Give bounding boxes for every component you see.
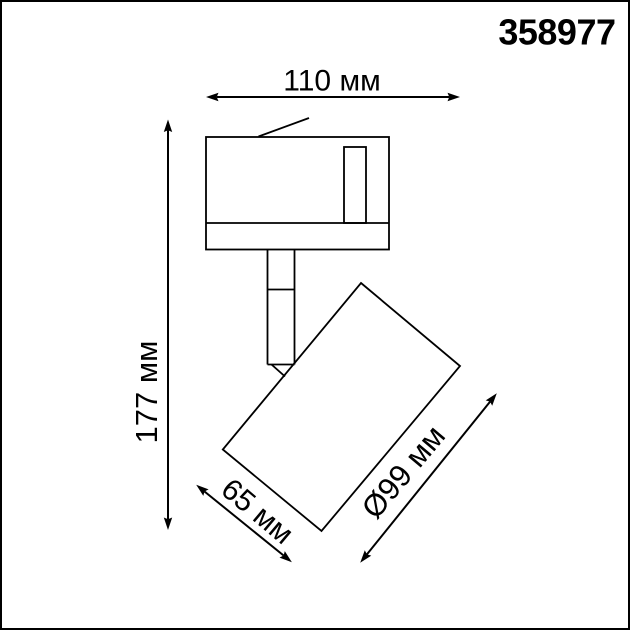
svg-text:358977: 358977 — [498, 12, 615, 53]
svg-text:177 мм: 177 мм — [129, 341, 164, 444]
svg-text:110 мм: 110 мм — [283, 65, 380, 98]
